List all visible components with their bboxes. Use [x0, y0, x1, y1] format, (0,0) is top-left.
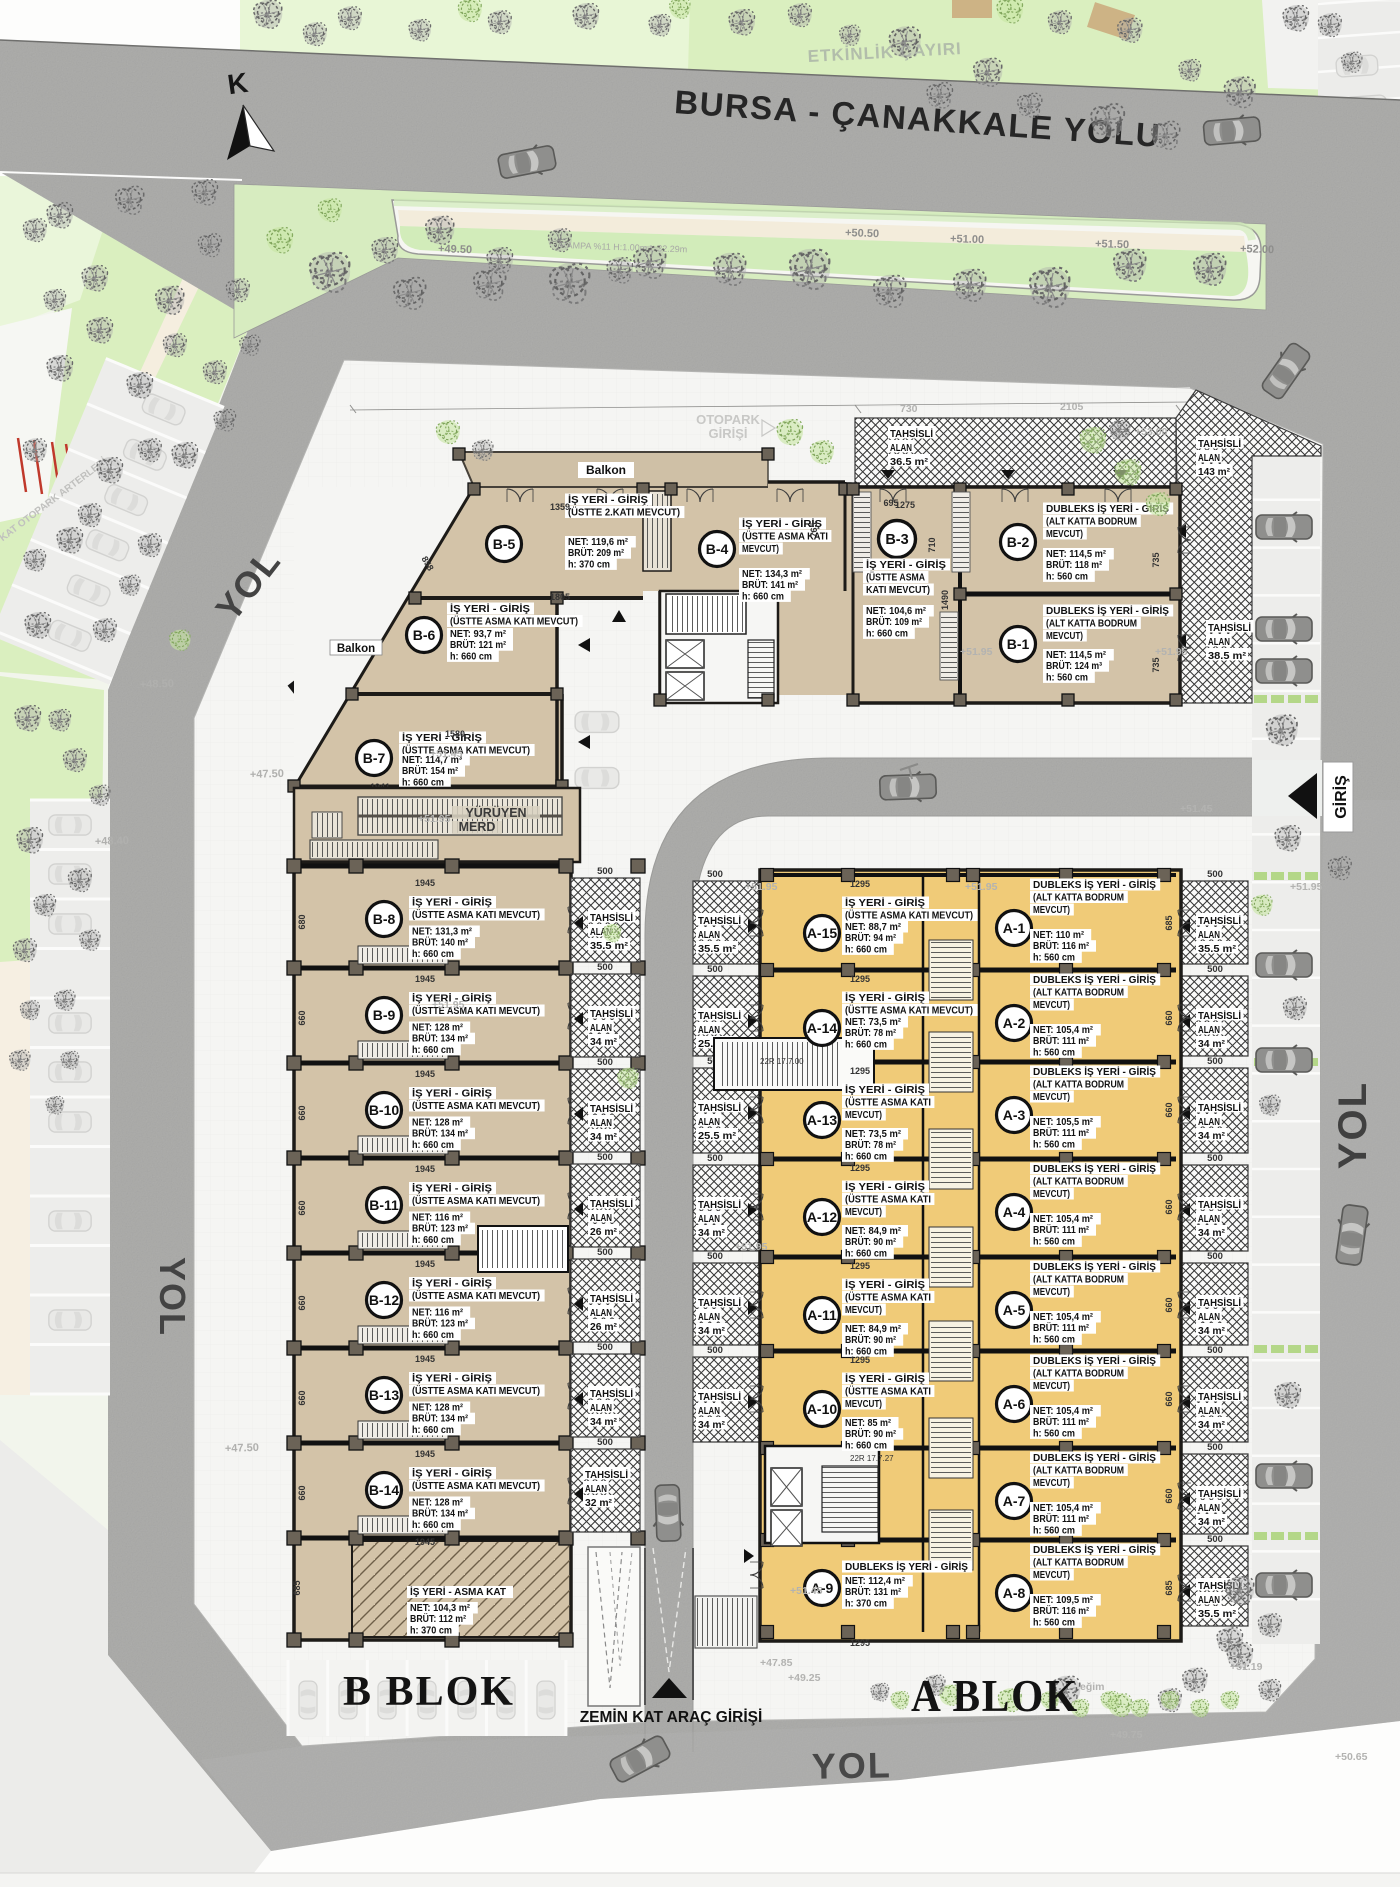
svg-text:+49.50: +49.50: [438, 243, 472, 256]
svg-text:B-5: B-5: [493, 536, 516, 552]
svg-text:500: 500: [1207, 1345, 1223, 1356]
svg-text:NET: 84,9 m²: NET: 84,9 m²: [845, 1323, 901, 1335]
svg-text:34 m²: 34 m²: [698, 1227, 725, 1239]
svg-text:h: 560 cm: h: 560 cm: [1033, 951, 1075, 963]
svg-text:NET: 105,4 m²: NET: 105,4 m²: [1033, 1213, 1093, 1225]
svg-text:NET: 105,4 m²: NET: 105,4 m²: [1033, 1024, 1093, 1036]
svg-text:34 m²: 34 m²: [1198, 1038, 1225, 1050]
svg-text:NET: 105,5 m²: NET: 105,5 m²: [1033, 1116, 1093, 1128]
svg-text:1945: 1945: [415, 1449, 435, 1459]
svg-text:(ALT KATTA BODRUM: (ALT KATTA BODRUM: [1033, 1274, 1124, 1286]
svg-text:(ÜSTTE ASMA KATI MEVCUT): (ÜSTTE ASMA KATI MEVCUT): [412, 1194, 540, 1207]
svg-text:500: 500: [1207, 1534, 1223, 1545]
svg-text:TAHSİSLİ: TAHSİSLİ: [590, 1197, 633, 1210]
svg-text:A-7: A-7: [1003, 1493, 1026, 1509]
svg-text:NET: 93,7 m²: NET: 93,7 m²: [450, 628, 506, 640]
svg-text:BRÜT: 111 m²: BRÜT: 111 m²: [1033, 1034, 1089, 1047]
svg-text:36.5 m²: 36.5 m²: [890, 456, 929, 468]
svg-text:660: 660: [297, 1010, 307, 1025]
svg-text:h: 660 cm: h: 660 cm: [845, 1439, 887, 1451]
svg-text:35.5 m²: 35.5 m²: [590, 940, 629, 952]
svg-text:A-5: A-5: [1003, 1302, 1026, 1318]
svg-text:BRÜT: 90 m²: BRÜT: 90 m²: [845, 1235, 896, 1248]
svg-text:B-11: B-11: [369, 1197, 399, 1213]
svg-text:B-4: B-4: [706, 541, 729, 557]
svg-text:1805: 1805: [550, 592, 570, 602]
svg-text:h: 660 cm: h: 660 cm: [742, 590, 784, 602]
svg-text:(ÜSTTE ASMA KATI MEVCUT): (ÜSTTE ASMA KATI MEVCUT): [845, 909, 973, 922]
svg-text:1295: 1295: [850, 1163, 870, 1173]
svg-text:500: 500: [1207, 1153, 1223, 1164]
svg-text:ZEMİN KAT ARAÇ GİRİŞİ: ZEMİN KAT ARAÇ GİRİŞİ: [580, 1709, 763, 1726]
svg-text:TAHSİSLİ: TAHSİSLİ: [890, 427, 933, 440]
svg-text:34 m²: 34 m²: [1198, 1419, 1225, 1431]
svg-text:h: 560 cm: h: 560 cm: [1046, 671, 1088, 683]
svg-text:h: 660 cm: h: 660 cm: [412, 1234, 454, 1246]
svg-text:ALAN: ALAN: [698, 1213, 720, 1225]
svg-text:660: 660: [297, 1485, 307, 1500]
svg-text:ALAN: ALAN: [590, 1212, 612, 1224]
svg-text:ALAN: ALAN: [1198, 1502, 1220, 1514]
svg-text:+51.95: +51.95: [735, 1241, 768, 1253]
svg-text:TAHSİSLİ: TAHSİSLİ: [590, 1102, 633, 1115]
svg-text:660: 660: [1164, 1102, 1174, 1117]
svg-text:BRÜT: 140 m²: BRÜT: 140 m²: [412, 936, 468, 949]
svg-text:MEVCUT): MEVCUT): [1033, 1569, 1070, 1581]
svg-text:(ALT KATTA BODRUM: (ALT KATTA BODRUM: [1046, 516, 1137, 528]
svg-text:26 m²: 26 m²: [590, 1321, 617, 1333]
svg-text:İŞ YERİ - GİRİŞ: İŞ YERİ - GİRİŞ: [568, 493, 648, 506]
svg-text:TAHSİSLİ: TAHSİSLİ: [1198, 1198, 1241, 1211]
svg-text:ALAN: ALAN: [1198, 452, 1220, 464]
svg-text:BRÜT: 90 m²: BRÜT: 90 m²: [845, 1427, 896, 1440]
svg-text:B-14: B-14: [369, 1482, 400, 1498]
svg-text:1295: 1295: [850, 974, 870, 984]
svg-text:YOL: YOL: [152, 1257, 193, 1337]
svg-text:35.5 m²: 35.5 m²: [1198, 943, 1237, 955]
svg-text:İŞ YERİ - ASMA KAT: İŞ YERİ - ASMA KAT: [410, 1585, 507, 1598]
svg-text:34 m²: 34 m²: [590, 1131, 617, 1143]
svg-text:İŞ YERİ - GİRİŞ: İŞ YERİ - GİRİŞ: [845, 991, 925, 1004]
svg-text:TAHSİSLİ: TAHSİSLİ: [585, 1468, 628, 1481]
svg-text:h: 660 cm: h: 660 cm: [412, 948, 454, 960]
svg-text:DUBLEKS İŞ YERİ - GİRİŞ: DUBLEKS İŞ YERİ - GİRİŞ: [1033, 1451, 1156, 1464]
svg-text:NET: 116 m²: NET: 116 m²: [412, 1307, 463, 1319]
svg-text:TAHSİSLİ: TAHSİSLİ: [1198, 1487, 1241, 1500]
svg-text:İŞ YERİ - GİRİŞ: İŞ YERİ - GİRİŞ: [845, 1372, 925, 1385]
svg-text:BRÜT: 134 m²: BRÜT: 134 m²: [412, 1032, 468, 1045]
svg-text:ALAN: ALAN: [590, 1307, 612, 1319]
svg-text:İŞ YERİ - GİRİŞ: İŞ YERİ - GİRİŞ: [450, 602, 530, 615]
svg-text:1295: 1295: [850, 879, 870, 889]
svg-text:500: 500: [597, 1057, 613, 1068]
svg-text:YOL: YOL: [811, 1744, 892, 1786]
svg-text:34 m²: 34 m²: [590, 1416, 617, 1428]
svg-text:İŞ YERİ - GİRİŞ: İŞ YERİ - GİRİŞ: [402, 731, 482, 744]
svg-text:ALAN: ALAN: [1198, 1213, 1220, 1225]
svg-text:TAHSİSLİ: TAHSİSLİ: [590, 1292, 633, 1305]
svg-text:1945: 1945: [415, 1164, 435, 1174]
svg-text:ALAN: ALAN: [590, 1117, 612, 1129]
svg-text:500: 500: [597, 1437, 613, 1448]
svg-text:BRÜT: 111 m²: BRÜT: 111 m²: [1033, 1415, 1089, 1428]
svg-text:MEVCUT): MEVCUT): [1033, 1188, 1070, 1200]
svg-text:(ALT KATTA BODRUM: (ALT KATTA BODRUM: [1033, 1176, 1124, 1188]
svg-text:1945: 1945: [415, 974, 435, 984]
svg-text:NET: 116 m²: NET: 116 m²: [412, 1212, 463, 1224]
svg-text:NET: 131,3 m²: NET: 131,3 m²: [412, 926, 472, 938]
svg-text:MEVCUT): MEVCUT): [1033, 999, 1070, 1011]
svg-text:NET: 105,4 m²: NET: 105,4 m²: [1033, 1405, 1093, 1417]
svg-text:(ÜSTTE ASMA KATI MEVCUT): (ÜSTTE ASMA KATI MEVCUT): [450, 615, 578, 628]
svg-text:B-13: B-13: [369, 1387, 400, 1403]
svg-text:35.5 m²: 35.5 m²: [1198, 1608, 1237, 1620]
svg-text:İŞ YERİ - GİRİŞ: İŞ YERİ - GİRİŞ: [845, 1278, 925, 1291]
svg-text:MEVCUT): MEVCUT): [1033, 1091, 1070, 1103]
svg-text:22R 17.7.27: 22R 17.7.27: [850, 1454, 894, 1463]
svg-text:İŞ YERİ - GİRİŞ: İŞ YERİ - GİRİŞ: [412, 1467, 492, 1480]
svg-text:BRÜT: 78 m²: BRÜT: 78 m²: [845, 1138, 896, 1151]
svg-text:MEVCUT): MEVCUT): [1046, 630, 1083, 642]
svg-text:695: 695: [883, 498, 898, 508]
svg-text:h: 660 cm: h: 660 cm: [402, 776, 444, 788]
svg-text:BRÜT: 134 m²: BRÜT: 134 m²: [412, 1127, 468, 1140]
svg-text:ALAN: ALAN: [1198, 929, 1220, 941]
svg-text:ALAN: ALAN: [590, 1022, 612, 1034]
svg-text:Balkon: Balkon: [586, 463, 626, 477]
svg-text:ALAN: ALAN: [698, 1405, 720, 1417]
svg-text:h: 560 cm: h: 560 cm: [1033, 1235, 1075, 1247]
svg-text:+47.85: +47.85: [760, 1657, 793, 1669]
svg-text:34 m²: 34 m²: [590, 1036, 617, 1048]
svg-text:1490: 1490: [940, 590, 950, 610]
svg-text:NET: 73,5 m²: NET: 73,5 m²: [845, 1128, 901, 1140]
svg-text:+47.50: +47.50: [250, 768, 284, 781]
svg-text:(ÜSTTE ASMA KATI: (ÜSTTE ASMA KATI: [845, 1291, 931, 1304]
svg-text:DUBLEKS İŞ YERİ - GİRİŞ: DUBLEKS İŞ YERİ - GİRİŞ: [1033, 1543, 1156, 1556]
svg-text:TAHSİSLİ: TAHSİSLİ: [1208, 621, 1251, 634]
svg-text:MEVCUT): MEVCUT): [742, 543, 779, 555]
svg-text:34 m²: 34 m²: [1198, 1227, 1225, 1239]
svg-text:BRÜT: 134 m²: BRÜT: 134 m²: [412, 1507, 468, 1520]
svg-text:+51.45: +51.45: [1180, 803, 1213, 815]
svg-text:(ÜSTTE ASMA KATI MEVCUT): (ÜSTTE ASMA KATI MEVCUT): [412, 1099, 540, 1112]
svg-text:TAHSİSLİ: TAHSİSLİ: [1198, 437, 1241, 450]
svg-text:A-15: A-15: [807, 925, 838, 941]
svg-text:h: 560 cm: h: 560 cm: [1033, 1616, 1075, 1628]
svg-text:DUBLEKS İŞ YERİ - GİRİŞ: DUBLEKS İŞ YERİ - GİRİŞ: [845, 1560, 968, 1573]
svg-text:BRÜT: 209 m²: BRÜT: 209 m²: [568, 546, 624, 559]
svg-text:B-9: B-9: [373, 1007, 396, 1023]
svg-text:h: 660 cm: h: 660 cm: [845, 1150, 887, 1162]
svg-text:TAHSİSLİ: TAHSİSLİ: [698, 1009, 741, 1022]
svg-text:TAHSİSLİ: TAHSİSLİ: [590, 1007, 633, 1020]
svg-text:BRÜT: 111 m²: BRÜT: 111 m²: [1033, 1321, 1089, 1334]
svg-text:+52.00: +52.00: [1240, 243, 1274, 256]
svg-text:660: 660: [297, 1390, 307, 1405]
svg-text:22R 17.7.00: 22R 17.7.00: [760, 1057, 804, 1066]
svg-text:ALAN: ALAN: [698, 1024, 720, 1036]
svg-text:YÜRÜYEN: YÜRÜYEN: [465, 805, 526, 820]
svg-text:735: 735: [1151, 657, 1161, 672]
svg-text:ALAN: ALAN: [1198, 1311, 1220, 1323]
svg-text:ALAN: ALAN: [698, 1116, 720, 1128]
svg-text:B BLOK: B BLOK: [343, 1669, 515, 1715]
svg-text:143 m²: 143 m²: [1198, 466, 1230, 478]
svg-text:ALAN: ALAN: [698, 1311, 720, 1323]
svg-text:TAHSİSLİ: TAHSİSLİ: [698, 1296, 741, 1309]
svg-text:NET: 128 m²: NET: 128 m²: [412, 1402, 463, 1414]
svg-text:+51.95: +51.95: [432, 999, 465, 1011]
svg-text:ALAN: ALAN: [1198, 1024, 1220, 1036]
svg-text:500: 500: [707, 1153, 723, 1164]
svg-text:+49.75: +49.75: [1110, 1729, 1143, 1741]
svg-text:A-12: A-12: [807, 1209, 838, 1225]
svg-text:(ÜSTTE ASMA KATI MEVCUT): (ÜSTTE ASMA KATI MEVCUT): [412, 1289, 540, 1302]
svg-text:h: 660 cm: h: 660 cm: [845, 1038, 887, 1050]
svg-text:1295: 1295: [850, 1066, 870, 1076]
svg-text:BRÜT: 141 m²: BRÜT: 141 m²: [742, 578, 798, 591]
svg-text:680: 680: [297, 914, 307, 929]
svg-text:660: 660: [297, 1295, 307, 1310]
svg-text:DUBLEKS İŞ YERİ - GİRİŞ: DUBLEKS İŞ YERİ - GİRİŞ: [1033, 1260, 1156, 1273]
svg-text:A-4: A-4: [1003, 1204, 1026, 1220]
svg-text:2105: 2105: [1060, 401, 1084, 413]
svg-text:ALAN: ALAN: [1198, 1405, 1220, 1417]
svg-text:(ALT KATTA BODRUM: (ALT KATTA BODRUM: [1033, 1465, 1124, 1477]
svg-text:A-3: A-3: [1003, 1107, 1026, 1123]
svg-text:BRÜT: 112 m²: BRÜT: 112 m²: [410, 1612, 466, 1625]
svg-text:NET: 114,5 m²: NET: 114,5 m²: [1046, 548, 1106, 560]
svg-text:İŞ YERİ - GİRİŞ: İŞ YERİ - GİRİŞ: [412, 896, 492, 909]
svg-text:34 m²: 34 m²: [1198, 1130, 1225, 1142]
svg-text:710: 710: [927, 537, 937, 552]
svg-text:38.5 m²: 38.5 m²: [1208, 650, 1247, 662]
svg-text:500: 500: [597, 1247, 613, 1258]
svg-text:B-8: B-8: [373, 911, 396, 927]
svg-text:685: 685: [1164, 1580, 1174, 1595]
svg-text:NET: 85 m²: NET: 85 m²: [845, 1417, 891, 1429]
svg-text:TAHSİSLİ: TAHSİSLİ: [1198, 1009, 1241, 1022]
svg-text:BRÜT: 111 m²: BRÜT: 111 m²: [1033, 1126, 1089, 1139]
svg-text:500: 500: [1207, 1251, 1223, 1262]
svg-text:1945: 1945: [415, 1069, 435, 1079]
svg-text:B-1: B-1: [1007, 636, 1030, 652]
svg-text:ALAN: ALAN: [698, 929, 720, 941]
svg-text:25.5 m²: 25.5 m²: [698, 1130, 737, 1142]
svg-text:NET: 88,7 m²: NET: 88,7 m²: [845, 921, 901, 933]
svg-text:h: 370 cm: h: 370 cm: [410, 1624, 452, 1636]
svg-text:NET: 73,5 m²: NET: 73,5 m²: [845, 1016, 901, 1028]
svg-text:İŞ YERİ - GİRİŞ: İŞ YERİ - GİRİŞ: [412, 1277, 492, 1290]
svg-text:(ÜSTTE ASMA KATI: (ÜSTTE ASMA KATI: [845, 1385, 931, 1398]
svg-text:34 m²: 34 m²: [1198, 1516, 1225, 1528]
svg-text:500: 500: [597, 1342, 613, 1353]
svg-text:MEVCUT): MEVCUT): [845, 1109, 882, 1121]
svg-text:(ALT KATTA BODRUM: (ALT KATTA BODRUM: [1033, 987, 1124, 999]
svg-text:KATI MEVCUT): KATI MEVCUT): [866, 584, 930, 596]
svg-text:730: 730: [900, 403, 918, 415]
svg-text:BRÜT: 111 m²: BRÜT: 111 m²: [1033, 1223, 1089, 1236]
svg-text:MEVCUT): MEVCUT): [1033, 904, 1070, 916]
svg-text:BRÜT: 121 m²: BRÜT: 121 m²: [450, 638, 506, 651]
svg-text:A-2: A-2: [1003, 1015, 1026, 1031]
svg-text:32 m²: 32 m²: [585, 1497, 612, 1509]
svg-text:h: 660 cm: h: 660 cm: [845, 943, 887, 955]
svg-text:K: K: [226, 67, 250, 101]
svg-text:NET: 105,4 m²: NET: 105,4 m²: [1033, 1311, 1093, 1323]
svg-text:BRÜT: 118 m²: BRÜT: 118 m²: [1046, 558, 1102, 571]
svg-text:İŞ YERİ - GİRİŞ: İŞ YERİ - GİRİŞ: [845, 1180, 925, 1193]
svg-text:1359: 1359: [550, 502, 570, 512]
svg-text:500: 500: [1207, 964, 1223, 975]
svg-text:660: 660: [1164, 1488, 1174, 1503]
svg-text:Balkon: Balkon: [337, 643, 375, 655]
svg-text:DUBLEKS İŞ YERİ - GİRİŞ: DUBLEKS İŞ YERİ - GİRİŞ: [1033, 1065, 1156, 1078]
svg-text:NET: 104,3 m²: NET: 104,3 m²: [410, 1602, 470, 1614]
svg-text:1945: 1945: [415, 1537, 435, 1547]
svg-text:+48.50: +48.50: [140, 678, 174, 691]
svg-text:+47.50: +47.50: [225, 1442, 259, 1455]
svg-text:NET: 128 m²: NET: 128 m²: [412, 1117, 463, 1129]
svg-text:1945: 1945: [415, 1354, 435, 1364]
svg-text:h: 660 cm: h: 660 cm: [866, 627, 908, 639]
svg-text:NET: 128 m²: NET: 128 m²: [412, 1497, 463, 1509]
svg-text:NET: 134,3 m²: NET: 134,3 m²: [742, 568, 802, 580]
svg-text:A-13: A-13: [807, 1112, 838, 1128]
svg-text:GİRİŞ: GİRİŞ: [1332, 775, 1350, 819]
svg-text:500: 500: [1207, 869, 1223, 880]
svg-text:DUBLEKS İŞ YERİ - GİRİŞ: DUBLEKS İŞ YERİ - GİRİŞ: [1033, 878, 1156, 891]
svg-text:26 m²: 26 m²: [590, 1226, 617, 1238]
svg-text:+51.45: +51.45: [790, 1585, 823, 1597]
svg-text:1295: 1295: [850, 1638, 870, 1648]
svg-text:İŞ YERİ - GİRİŞ: İŞ YERİ - GİRİŞ: [845, 896, 925, 909]
svg-text:+50.65: +50.65: [1335, 1751, 1368, 1763]
svg-text:1580: 1580: [445, 729, 465, 739]
svg-text:B-3: B-3: [885, 532, 908, 548]
svg-text:A-1: A-1: [1003, 920, 1026, 936]
svg-text:İŞ YERİ - GİRİŞ: İŞ YERİ - GİRİŞ: [412, 1182, 492, 1195]
svg-text:NET: 84,9 m²: NET: 84,9 m²: [845, 1225, 901, 1237]
svg-text:TAHSİSLİ: TAHSİSLİ: [698, 914, 741, 927]
svg-text:GİRİŞİ: GİRİŞİ: [708, 426, 747, 441]
svg-text:(ALT KATTA BODRUM: (ALT KATTA BODRUM: [1033, 1557, 1124, 1569]
svg-text:(ALT KATTA BODRUM: (ALT KATTA BODRUM: [1033, 1079, 1124, 1091]
svg-text:BRÜT: 94 m²: BRÜT: 94 m²: [845, 931, 896, 944]
svg-text:685: 685: [1164, 915, 1174, 930]
svg-text:MEVCUT): MEVCUT): [845, 1304, 882, 1316]
svg-text:ALAN: ALAN: [590, 1402, 612, 1414]
svg-text:A BLOK: A BLOK: [911, 1670, 1079, 1721]
svg-text:+48.40: +48.40: [95, 835, 129, 848]
svg-text:A-14: A-14: [807, 1020, 838, 1036]
svg-text:(ÜSTTE 2.KATI MEVCUT): (ÜSTTE 2.KATI MEVCUT): [568, 506, 680, 519]
svg-text:+51.45: +51.45: [430, 748, 463, 760]
svg-text:h: 370 cm: h: 370 cm: [845, 1597, 887, 1609]
svg-text:34 m²: 34 m²: [698, 1325, 725, 1337]
svg-text:h: 660 cm: h: 660 cm: [412, 1329, 454, 1341]
svg-text:500: 500: [1207, 1442, 1223, 1453]
svg-text:+51.00: +51.00: [950, 233, 984, 246]
svg-text:500: 500: [707, 1345, 723, 1356]
svg-text:ALAN: ALAN: [1198, 1594, 1220, 1606]
svg-text:BRÜT: 90 m²: BRÜT: 90 m²: [845, 1333, 896, 1346]
svg-text:h: 560 cm: h: 560 cm: [1046, 570, 1088, 582]
svg-text:+51.95: +51.95: [1155, 646, 1188, 658]
svg-text:DUBLEKS İŞ YERİ - GİRİŞ: DUBLEKS İŞ YERİ - GİRİŞ: [1033, 973, 1156, 986]
svg-text:35.5 m²: 35.5 m²: [698, 943, 737, 955]
svg-text:h: 560 cm: h: 560 cm: [1033, 1046, 1075, 1058]
svg-text:(ÜSTTE ASMA KATI: (ÜSTTE ASMA KATI: [845, 1096, 931, 1109]
svg-text:MEVCUT): MEVCUT): [845, 1398, 882, 1410]
svg-text:735: 735: [1151, 552, 1161, 567]
svg-text:B-12: B-12: [369, 1292, 400, 1308]
svg-text:BRÜT: 116 m²: BRÜT: 116 m²: [1033, 939, 1089, 952]
svg-text:BRÜT: 116 m²: BRÜT: 116 m²: [1033, 1604, 1089, 1617]
svg-text:DUBLEKS İŞ YERİ - GİRİŞ: DUBLEKS İŞ YERİ - GİRİŞ: [1033, 1162, 1156, 1175]
svg-text:BRÜT: 109 m²: BRÜT: 109 m²: [866, 615, 922, 628]
svg-text:BRÜT: 134 m²: BRÜT: 134 m²: [412, 1412, 468, 1425]
svg-text:+51.95: +51.95: [745, 881, 778, 893]
svg-text:500: 500: [1207, 1056, 1223, 1067]
svg-text:500: 500: [597, 1152, 613, 1163]
svg-text:TAHSİSLİ: TAHSİSLİ: [1198, 1101, 1241, 1114]
svg-text:İŞ YERİ - GİRİŞ: İŞ YERİ - GİRİŞ: [866, 558, 946, 571]
svg-text:TAHSİSLİ: TAHSİSLİ: [698, 1101, 741, 1114]
svg-text:İŞ YERİ - GİRİŞ: İŞ YERİ - GİRİŞ: [412, 1087, 492, 1100]
svg-text:TAHSİSLİ: TAHSİSLİ: [590, 911, 633, 924]
svg-text:A-11: A-11: [807, 1307, 837, 1323]
svg-text:(ALT KATTA BODRUM: (ALT KATTA BODRUM: [1046, 618, 1137, 630]
svg-text:(ÜSTTE ASMA: (ÜSTTE ASMA: [866, 571, 925, 584]
svg-text:1295: 1295: [850, 1261, 870, 1271]
svg-text:1945: 1945: [415, 1259, 435, 1269]
svg-text:h: 660 cm: h: 660 cm: [412, 1139, 454, 1151]
svg-text:500: 500: [707, 869, 723, 880]
svg-text:A-8: A-8: [1003, 1585, 1026, 1601]
svg-text:OTOPARK: OTOPARK: [696, 412, 760, 427]
svg-text:TAHSİSLİ: TAHSİSLİ: [1198, 914, 1241, 927]
svg-text:BRÜT: 124 m³: BRÜT: 124 m³: [1046, 659, 1102, 672]
svg-text:(ÜSTTE ASMA KATI MEVCUT): (ÜSTTE ASMA KATI MEVCUT): [845, 1004, 973, 1017]
svg-text:TAHSİSLİ: TAHSİSLİ: [1198, 1296, 1241, 1309]
svg-text:34 m²: 34 m²: [698, 1419, 725, 1431]
svg-text:h: 660 cm: h: 660 cm: [412, 1519, 454, 1531]
svg-text:+50.50: +50.50: [845, 227, 879, 240]
svg-text:(ÜSTTE ASMA KATI MEVCUT): (ÜSTTE ASMA KATI MEVCUT): [412, 1479, 540, 1492]
svg-text:NET: 105,4 m²: NET: 105,4 m²: [1033, 1502, 1093, 1514]
svg-text:MEVCUT): MEVCUT): [1033, 1380, 1070, 1392]
svg-text:+53.00: +53.00: [1135, 426, 1168, 438]
svg-text:500: 500: [597, 962, 613, 973]
svg-text:NET: 112,4 m²: NET: 112,4 m²: [845, 1575, 905, 1587]
svg-text:İŞ YERİ - GİRİŞ: İŞ YERİ - GİRİŞ: [845, 1083, 925, 1096]
svg-text:h: 370 cm: h: 370 cm: [568, 558, 610, 570]
svg-text:660: 660: [1164, 1010, 1174, 1025]
svg-text:h: 660 cm: h: 660 cm: [412, 1424, 454, 1436]
svg-text:B-6: B-6: [413, 627, 436, 643]
svg-text:BRÜT: 154 m²: BRÜT: 154 m²: [402, 764, 458, 777]
svg-text:DUBLEKS İŞ YERİ - GİRİŞ: DUBLEKS İŞ YERİ - GİRİŞ: [1046, 604, 1169, 617]
svg-text:500: 500: [707, 964, 723, 975]
svg-text:h: 660 cm: h: 660 cm: [412, 1044, 454, 1056]
svg-text:h: 660 cm: h: 660 cm: [845, 1247, 887, 1259]
svg-text:BRÜT: 123 m²: BRÜT: 123 m²: [412, 1317, 468, 1330]
svg-text:MEVCUT): MEVCUT): [1046, 528, 1083, 540]
svg-text:(ÜSTTE ASMA KATI: (ÜSTTE ASMA KATI: [845, 1193, 931, 1206]
svg-text:TAHSİSLİ: TAHSİSLİ: [590, 1387, 633, 1400]
